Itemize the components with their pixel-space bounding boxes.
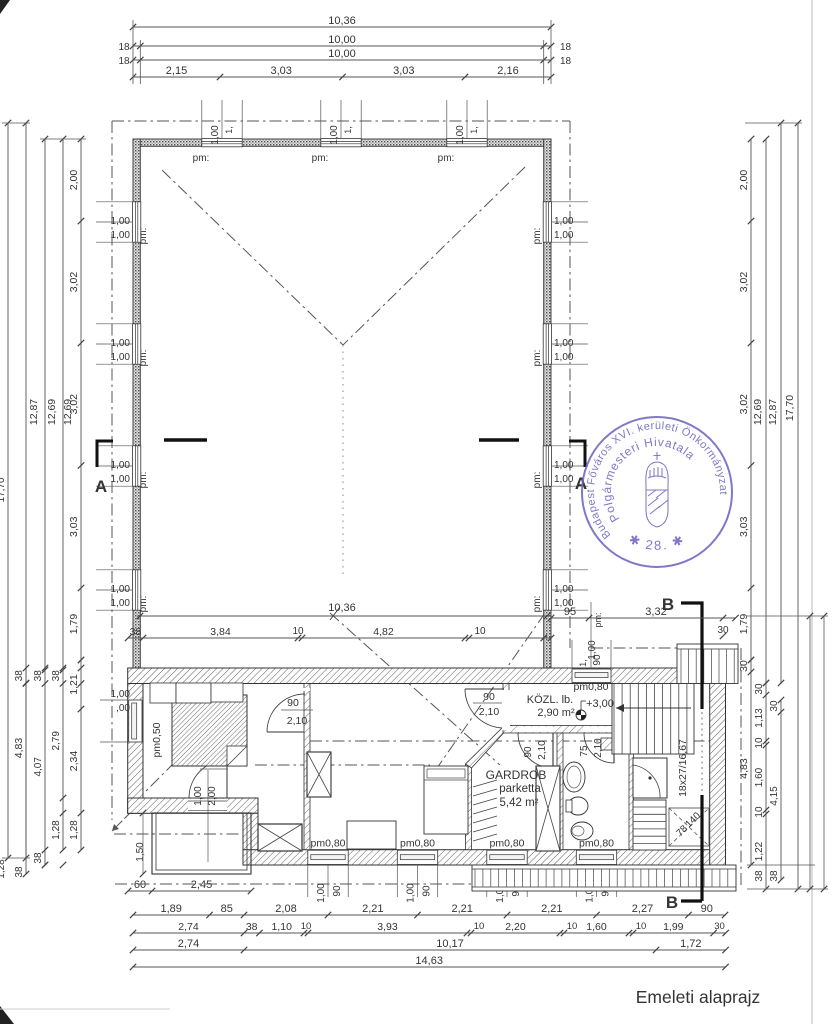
svg-text:1,00: 1,00 <box>329 125 340 145</box>
svg-text:90: 90 <box>332 885 343 897</box>
svg-text:38: 38 <box>14 670 25 682</box>
svg-text:B: B <box>666 893 678 912</box>
svg-text:parketta: parketta <box>499 783 541 795</box>
svg-text:pm:: pm: <box>138 228 149 245</box>
svg-text:2,08: 2,08 <box>275 903 296 915</box>
svg-text:10: 10 <box>636 921 647 932</box>
svg-text:10: 10 <box>292 626 304 637</box>
svg-text:pm:: pm: <box>532 596 543 613</box>
svg-text:12,69: 12,69 <box>752 399 764 425</box>
svg-text:1,: 1, <box>343 126 353 134</box>
svg-text:2,27: 2,27 <box>632 903 653 915</box>
svg-text:1,60: 1,60 <box>586 921 607 933</box>
svg-text:2,10: 2,10 <box>479 706 500 718</box>
svg-text:1,00: 1,00 <box>193 786 204 806</box>
svg-text:1,00: 1,00 <box>111 689 131 700</box>
svg-text:1,00: 1,00 <box>587 640 598 660</box>
svg-text:2,79: 2,79 <box>51 731 62 751</box>
svg-text:1,99: 1,99 <box>663 921 684 933</box>
svg-text:38: 38 <box>246 921 258 933</box>
svg-text:18: 18 <box>560 56 572 67</box>
svg-text:4,82: 4,82 <box>373 626 394 638</box>
svg-text:10: 10 <box>754 737 765 749</box>
svg-text:2,45: 2,45 <box>191 879 212 891</box>
svg-text:90: 90 <box>422 885 433 897</box>
svg-text:95: 95 <box>564 606 576 618</box>
svg-text:3,03: 3,03 <box>68 516 80 537</box>
svg-text:2,21: 2,21 <box>362 903 383 915</box>
svg-text:10: 10 <box>301 921 312 932</box>
svg-text:pm0,80: pm0,80 <box>400 838 435 850</box>
svg-text:1,28: 1,28 <box>51 820 62 840</box>
svg-text:10: 10 <box>474 626 486 637</box>
svg-text:pm:: pm: <box>532 228 543 245</box>
svg-text:38: 38 <box>33 670 44 682</box>
svg-text:90: 90 <box>483 691 495 703</box>
svg-text:3,02: 3,02 <box>738 394 750 415</box>
svg-text:2,34: 2,34 <box>68 751 80 772</box>
svg-text:3,84: 3,84 <box>210 626 231 638</box>
svg-text:2,00: 2,00 <box>207 786 218 806</box>
svg-text:5,42 m²: 5,42 m² <box>500 797 539 809</box>
svg-text:38: 38 <box>51 670 62 682</box>
svg-text:Emeleti alaprajz: Emeleti alaprajz <box>636 987 761 1007</box>
svg-text:1,00: 1,00 <box>554 230 574 241</box>
svg-text:1,00: 1,00 <box>554 584 574 595</box>
svg-text:4,83: 4,83 <box>13 738 25 759</box>
svg-text:10: 10 <box>754 806 765 818</box>
svg-text:4,15: 4,15 <box>769 786 780 806</box>
svg-text:3,03: 3,03 <box>393 65 414 77</box>
svg-text:pm:: pm: <box>532 472 543 489</box>
svg-text:3,93: 3,93 <box>377 921 398 933</box>
svg-text:12,87: 12,87 <box>767 399 779 425</box>
svg-text:,00: ,00 <box>116 703 130 714</box>
svg-text:2,15: 2,15 <box>166 65 187 77</box>
svg-text:30: 30 <box>717 625 729 636</box>
svg-text:18: 18 <box>118 56 130 67</box>
svg-text:pm:: pm: <box>438 153 455 164</box>
svg-text:pm0,50: pm0,50 <box>151 722 163 757</box>
svg-text:2,20: 2,20 <box>505 921 526 933</box>
svg-text:1,00: 1,00 <box>210 125 221 145</box>
svg-text:2,90 m²: 2,90 m² <box>537 707 575 719</box>
svg-text:2,00: 2,00 <box>738 170 750 191</box>
svg-text:1,00: 1,00 <box>111 584 131 595</box>
svg-text:18: 18 <box>118 42 130 53</box>
svg-text:1,00: 1,00 <box>554 338 574 349</box>
svg-text:1,00: 1,00 <box>406 883 417 903</box>
svg-text:1,72: 1,72 <box>680 938 701 950</box>
svg-text:10,36: 10,36 <box>328 602 356 614</box>
svg-text:+3,00: +3,00 <box>586 698 614 710</box>
svg-text:1,00: 1,00 <box>554 352 574 363</box>
svg-text:1,00: 1,00 <box>554 460 574 471</box>
svg-text:30: 30 <box>769 700 780 712</box>
svg-text:30: 30 <box>714 921 725 932</box>
svg-text:1,13: 1,13 <box>754 708 765 728</box>
svg-text:10,00: 10,00 <box>328 34 356 46</box>
svg-text:3,02: 3,02 <box>68 272 80 293</box>
svg-text:2,00: 2,00 <box>68 170 80 191</box>
svg-text:2,21: 2,21 <box>541 903 562 915</box>
svg-text:60: 60 <box>134 879 146 891</box>
svg-text:1,50: 1,50 <box>135 842 146 862</box>
svg-text:GARDROB: GARDROB <box>486 768 547 782</box>
svg-text:pm:: pm: <box>138 472 149 489</box>
svg-text:1,: 1, <box>224 126 234 134</box>
svg-text:1,00: 1,00 <box>554 216 574 227</box>
svg-text:2,10: 2,10 <box>593 738 604 758</box>
svg-text:10,00: 10,00 <box>328 48 356 60</box>
svg-text:2,16: 2,16 <box>497 65 518 77</box>
svg-text:1,21: 1,21 <box>68 674 80 695</box>
svg-text:2,10: 2,10 <box>287 715 308 727</box>
svg-text:pm:: pm: <box>532 350 543 367</box>
svg-text:pm:: pm: <box>312 153 329 164</box>
svg-text:2,74: 2,74 <box>178 938 199 950</box>
svg-text:1,28: 1,28 <box>69 820 80 840</box>
svg-text:38: 38 <box>754 870 765 882</box>
svg-text:4,83: 4,83 <box>738 758 750 779</box>
svg-text:3,32: 3,32 <box>645 606 666 618</box>
svg-text:pm0,80: pm0,80 <box>489 838 524 850</box>
svg-text:10,17: 10,17 <box>436 938 464 950</box>
svg-text:3,02: 3,02 <box>68 394 80 415</box>
svg-text:90: 90 <box>523 746 534 758</box>
svg-text:1,00: 1,00 <box>111 338 131 349</box>
svg-text:pm0,80: pm0,80 <box>310 838 345 850</box>
svg-text:3,02: 3,02 <box>738 272 750 293</box>
svg-text:3,03: 3,03 <box>270 65 291 77</box>
svg-text:pm:: pm: <box>138 350 149 367</box>
svg-text:2,74: 2,74 <box>178 921 199 933</box>
svg-text:18: 18 <box>560 42 572 53</box>
svg-text:1,00: 1,00 <box>554 474 574 485</box>
svg-text:1,79: 1,79 <box>68 614 80 635</box>
svg-text:85: 85 <box>221 903 233 915</box>
svg-text:pm:: pm: <box>593 612 603 627</box>
svg-text:10,36: 10,36 <box>328 15 356 27</box>
svg-text:1,00: 1,00 <box>111 598 131 609</box>
svg-text:pm:: pm: <box>193 153 210 164</box>
svg-text:pm0,80: pm0,80 <box>573 681 608 693</box>
svg-text:1,00: 1,00 <box>111 460 131 471</box>
svg-text:38: 38 <box>130 626 142 638</box>
svg-text:38: 38 <box>769 870 780 882</box>
svg-text:90: 90 <box>701 903 713 915</box>
svg-text:3,03: 3,03 <box>738 516 750 537</box>
svg-text:A: A <box>95 477 107 496</box>
svg-text:38: 38 <box>33 852 44 864</box>
svg-text:1,00: 1,00 <box>316 883 327 903</box>
svg-text:10: 10 <box>567 921 578 932</box>
svg-text:pm:: pm: <box>138 596 149 613</box>
svg-text:1,00: 1,00 <box>111 352 131 363</box>
svg-text:10: 10 <box>474 921 485 932</box>
svg-text:1,00: 1,00 <box>111 230 131 241</box>
svg-text:KÖZL. lb.: KÖZL. lb. <box>527 694 573 706</box>
svg-text:17,70: 17,70 <box>0 477 7 502</box>
svg-text:1,00: 1,00 <box>111 216 131 227</box>
svg-text:30: 30 <box>754 683 765 695</box>
svg-text:38: 38 <box>14 866 25 878</box>
svg-text:18x27/16,67: 18x27/16,67 <box>677 739 689 797</box>
svg-text:17,70: 17,70 <box>784 395 796 421</box>
svg-text:4,07: 4,07 <box>33 757 44 777</box>
svg-text:30: 30 <box>738 660 750 672</box>
svg-text:12,87: 12,87 <box>28 399 40 425</box>
svg-text:1,00: 1,00 <box>111 474 131 485</box>
svg-text:1,89: 1,89 <box>160 903 181 915</box>
svg-text:1,22: 1,22 <box>754 841 765 861</box>
svg-text:1,: 1, <box>469 126 479 134</box>
svg-text:75: 75 <box>579 745 590 757</box>
svg-text:12,69: 12,69 <box>46 399 58 425</box>
svg-text:14,63: 14,63 <box>415 955 443 967</box>
svg-text:1,79: 1,79 <box>738 614 750 635</box>
svg-text:2,21: 2,21 <box>451 903 472 915</box>
svg-text:1,28: 1,28 <box>0 859 7 879</box>
svg-text:1,10: 1,10 <box>271 921 292 933</box>
svg-text:2,10: 2,10 <box>537 740 548 760</box>
svg-text:90: 90 <box>287 697 299 709</box>
svg-text:1,00: 1,00 <box>455 125 466 145</box>
svg-text:1,60: 1,60 <box>754 767 765 787</box>
